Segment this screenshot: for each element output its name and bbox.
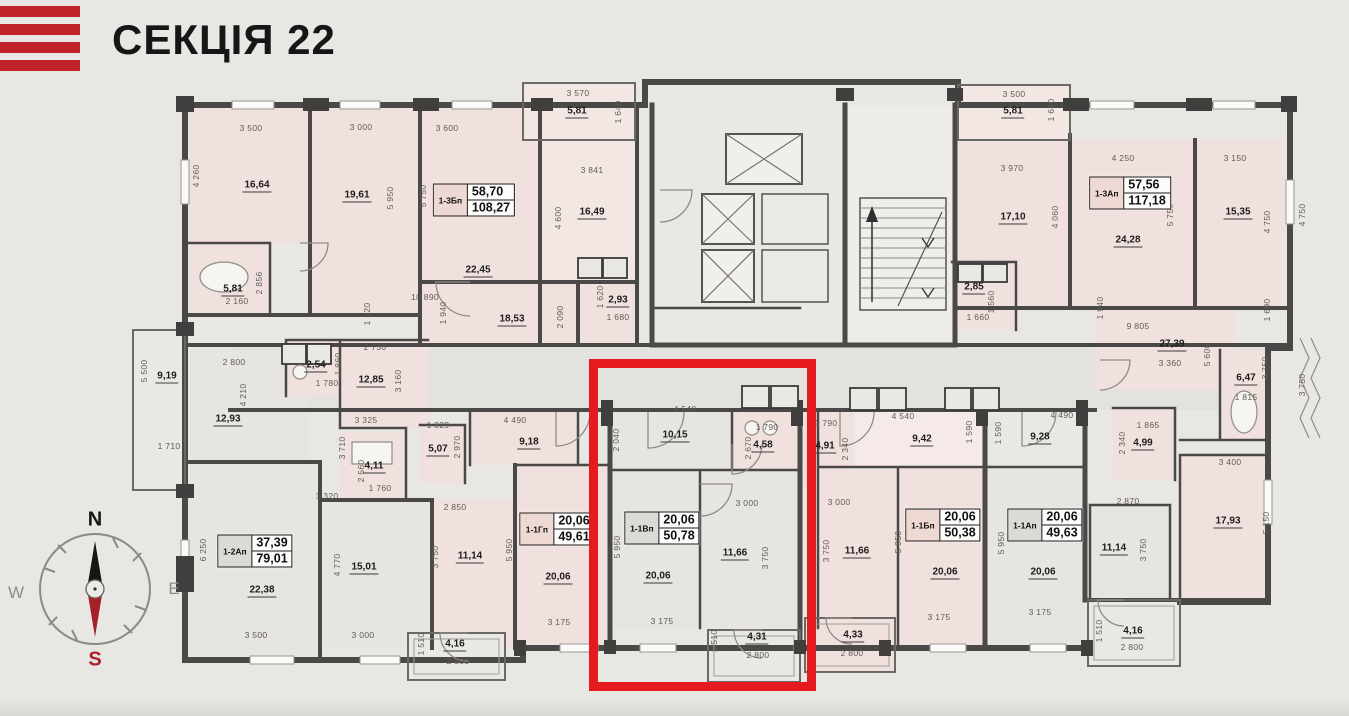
dimension-label: 1 220 <box>362 303 372 326</box>
dimension-label: 2 856 <box>254 272 264 295</box>
apartment-box-1-1gp: 1-1Гп20,0649,61 <box>519 513 594 546</box>
apartment-code: 1-1Гп <box>520 514 554 545</box>
room-area-label: 9,42 <box>910 434 933 447</box>
apartment-living-area: 20,06 <box>940 510 979 526</box>
dimension-label: 1 760 <box>369 483 392 493</box>
dimension-label: 1 829 <box>427 420 450 430</box>
room-area-label: 2,85 <box>962 282 985 295</box>
dimension-label: 3 360 <box>1159 358 1182 368</box>
dimension-label: 4 210 <box>238 384 248 407</box>
dimension-label: 3 500 <box>245 630 268 640</box>
highlighted-apartment-outline <box>589 359 816 691</box>
apartment-total-area: 117,18 <box>1124 194 1170 209</box>
dimension-label: 3 175 <box>548 617 571 627</box>
dimension-label: 3 750 <box>821 540 831 563</box>
room-area-label: 5,81 <box>221 284 244 297</box>
header: СЕКЦІЯ 22 <box>0 0 500 90</box>
dimension-label: 5 950 <box>504 539 514 562</box>
dimension-label: 4 750 <box>1262 211 1272 234</box>
dimension-label: 4 490 <box>1051 410 1074 420</box>
dimension-label: 4 750 <box>1297 204 1307 227</box>
dimension-label: 1 590 <box>964 421 974 444</box>
room-area-label: 9,19 <box>155 371 178 384</box>
room-area-label: 15,35 <box>1223 207 1252 220</box>
dimension-label: 3 750 <box>1297 374 1307 397</box>
compass-north-label: N <box>88 509 102 532</box>
dimension-label: 2 800 <box>447 656 470 666</box>
dimension-label: 1 865 <box>1137 420 1160 430</box>
apartment-code: 1-1Бп <box>906 510 940 541</box>
photo-edge-shading <box>0 700 1349 716</box>
room-area-label: 4,99 <box>1131 438 1154 451</box>
apartment-total-area: 49,61 <box>554 530 593 545</box>
apartment-box-1-1ap: 1-1Ап20,0649,63 <box>1007 509 1082 542</box>
apartment-living-area: 37,39 <box>252 536 291 552</box>
dimension-label: 4 250 <box>1112 153 1135 163</box>
room-area-label: 2,93 <box>606 295 629 308</box>
dimension-label: 1 620 <box>595 286 605 309</box>
dimension-label: 2 800 <box>841 648 864 658</box>
apartment-living-area: 20,06 <box>1042 510 1081 526</box>
room-area-label: 4,33 <box>841 630 864 643</box>
dimension-label: 5 950 <box>385 187 395 210</box>
dimension-label: 3 750 <box>1138 539 1148 562</box>
room-area-label: 17,10 <box>998 212 1027 225</box>
dimension-label: 3 160 <box>393 370 403 393</box>
room-area-label: 20,06 <box>543 572 572 585</box>
room-area-label: 4,16 <box>443 639 466 652</box>
apartment-total-area: 108,27 <box>468 201 514 216</box>
dimension-label: 5 750 <box>418 185 428 208</box>
dimension-label: 2 560 <box>356 460 366 483</box>
dimension-label: 2 730 <box>364 342 387 352</box>
dimension-label: 1 940 <box>438 302 448 325</box>
dimension-label: 1 510 <box>1094 620 1104 643</box>
apartment-box-1-3bp: 1-3Бп58,70108,27 <box>433 184 515 217</box>
dimension-label: 1 590 <box>993 422 1003 445</box>
dimension-label: 3 710 <box>337 437 347 460</box>
room-area-label: 27,39 <box>1157 339 1186 352</box>
apartment-living-area: 57,56 <box>1124 178 1170 194</box>
dimension-label: 2 850 <box>444 502 467 512</box>
dimension-label: 1 640 <box>613 101 623 124</box>
apartment-living-area: 58,70 <box>468 185 514 201</box>
dimension-label: 9 805 <box>1127 321 1150 331</box>
room-area-label: 16,64 <box>242 180 271 193</box>
apartment-total-area: 79,01 <box>252 552 291 567</box>
section-title: СЕКЦІЯ 22 <box>112 16 336 64</box>
floor-plan-page: СЕКЦІЯ 22 N S W E 1-3Бп58,70108,27 1-3Ап… <box>0 0 1349 716</box>
dimension-label: 4 600 <box>553 207 563 230</box>
dimension-label: 2 160 <box>226 296 249 306</box>
dimension-label: 3 600 <box>436 123 459 133</box>
dimension-label: 4 490 <box>504 415 527 425</box>
dimension-label: 2 340 <box>840 438 850 461</box>
apartment-box-1-3ap: 1-3Ап57,56117,18 <box>1089 177 1171 210</box>
dimension-label: 10 890 <box>411 292 439 302</box>
room-area-label: 11,14 <box>456 551 484 564</box>
room-area-label: 17,93 <box>1213 516 1242 529</box>
apartment-total-area: 50,38 <box>940 526 979 541</box>
room-area-label: 6,47 <box>1234 373 1257 386</box>
dimension-label: 4 540 <box>892 411 915 421</box>
room-area-label: 5,07 <box>426 444 449 457</box>
room-area-label: 22,38 <box>247 585 276 598</box>
dimension-label: 2 340 <box>1117 432 1127 455</box>
dimension-label: 1 320 <box>316 491 339 501</box>
room-area-label: 9,18 <box>517 437 540 450</box>
compass-south-label: S <box>88 649 101 672</box>
dimension-label: 3 175 <box>1029 607 1052 617</box>
room-area-label: 12,93 <box>213 414 242 427</box>
apartment-code: 1-2Ап <box>218 536 252 567</box>
room-area-label: 18,53 <box>497 314 526 327</box>
dimension-label: 1 790 <box>815 418 838 428</box>
apartment-code: 1-1Ап <box>1008 510 1042 541</box>
dimension-label: 1 680 <box>607 312 630 322</box>
dimension-label: 5 500 <box>139 360 149 383</box>
dimension-label: 1 710 <box>158 441 181 451</box>
dimension-label: 1 560 <box>986 291 996 314</box>
apartment-box-1-2ap: 1-2Ап37,3979,01 <box>217 535 292 568</box>
dimension-label: 4 260 <box>191 165 201 188</box>
apartment-living-area: 20,06 <box>554 514 593 530</box>
apartment-code: 1-3Бп <box>434 185 468 216</box>
dimension-label: 1 860 <box>333 353 343 376</box>
dimension-label: 6 250 <box>198 539 208 562</box>
dimension-label: 3 841 <box>581 165 604 175</box>
dimension-label: 5 950 <box>893 531 903 554</box>
apartment-total-area: 49,63 <box>1042 526 1081 541</box>
dimension-label: 1 640 <box>1046 99 1056 122</box>
dimension-label: 3 570 <box>567 88 590 98</box>
apartment-code: 1-3Ап <box>1090 178 1124 209</box>
dimension-label: 1 815 <box>1235 392 1258 402</box>
room-area-label: 5,81 <box>565 106 588 119</box>
room-area-label: 2,54 <box>304 360 327 373</box>
dimension-label: 3 400 <box>1219 457 1242 467</box>
dimension-label: 3 000 <box>352 630 375 640</box>
dimension-label: 3 970 <box>1001 163 1024 173</box>
room-area-label: 9,28 <box>1028 432 1051 445</box>
dimension-label: 1 780 <box>316 378 339 388</box>
room-area-label: 12,85 <box>356 375 385 388</box>
room-area-label: 11,14 <box>1100 543 1128 556</box>
logo-stripes-icon <box>0 6 80 78</box>
compass-west-label: W <box>8 583 24 603</box>
dimension-label: 3 000 <box>828 497 851 507</box>
dimension-label: 1 660 <box>967 312 990 322</box>
room-area-label: 5,81 <box>1001 106 1024 119</box>
compass-east-label: E <box>168 579 179 599</box>
room-area-label: 20,06 <box>930 567 959 580</box>
room-area-label: 24,28 <box>1113 235 1142 248</box>
room-area-label: 20,06 <box>1028 567 1057 580</box>
dimension-label: 2 800 <box>1121 642 1144 652</box>
dimension-label: 1 690 <box>1262 299 1272 322</box>
dimension-label: 5 150 <box>1261 512 1271 535</box>
dimension-label: 2 870 <box>1117 496 1140 506</box>
room-area-label: 22,45 <box>463 265 492 278</box>
dimension-label: 1 510 <box>416 633 426 656</box>
dimension-label: 3 000 <box>350 122 373 132</box>
room-area-label: 4,91 <box>813 441 836 454</box>
dimension-label: 3 750 <box>430 546 440 569</box>
dimension-label: 3 150 <box>1224 153 1247 163</box>
dimension-label: 3 500 <box>240 123 263 133</box>
dimension-label: 2 970 <box>452 436 462 459</box>
dimension-label: 5 600 <box>1202 344 1212 367</box>
dimension-label: 5 950 <box>996 532 1006 555</box>
room-area-label: 16,49 <box>577 207 606 220</box>
room-area-label: 15,01 <box>349 562 378 575</box>
apartment-box-1-1bp: 1-1Бп20,0650,38 <box>905 509 980 542</box>
room-area-label: 4,16 <box>1121 626 1144 639</box>
room-area-label: 19,61 <box>342 190 371 203</box>
dimension-label: 3 175 <box>928 612 951 622</box>
dimension-label: 2 800 <box>223 357 246 367</box>
room-area-label: 11,66 <box>843 546 871 559</box>
dimension-label: 1 940 <box>1095 297 1105 320</box>
dimension-label: 3 750 <box>1260 357 1270 380</box>
dimension-label: 4 770 <box>332 554 342 577</box>
dimension-label: 3 500 <box>1003 89 1026 99</box>
dimension-label: 3 325 <box>355 415 378 425</box>
dimension-label: 4 060 <box>1050 206 1060 229</box>
dimension-label: 2 090 <box>555 306 565 329</box>
